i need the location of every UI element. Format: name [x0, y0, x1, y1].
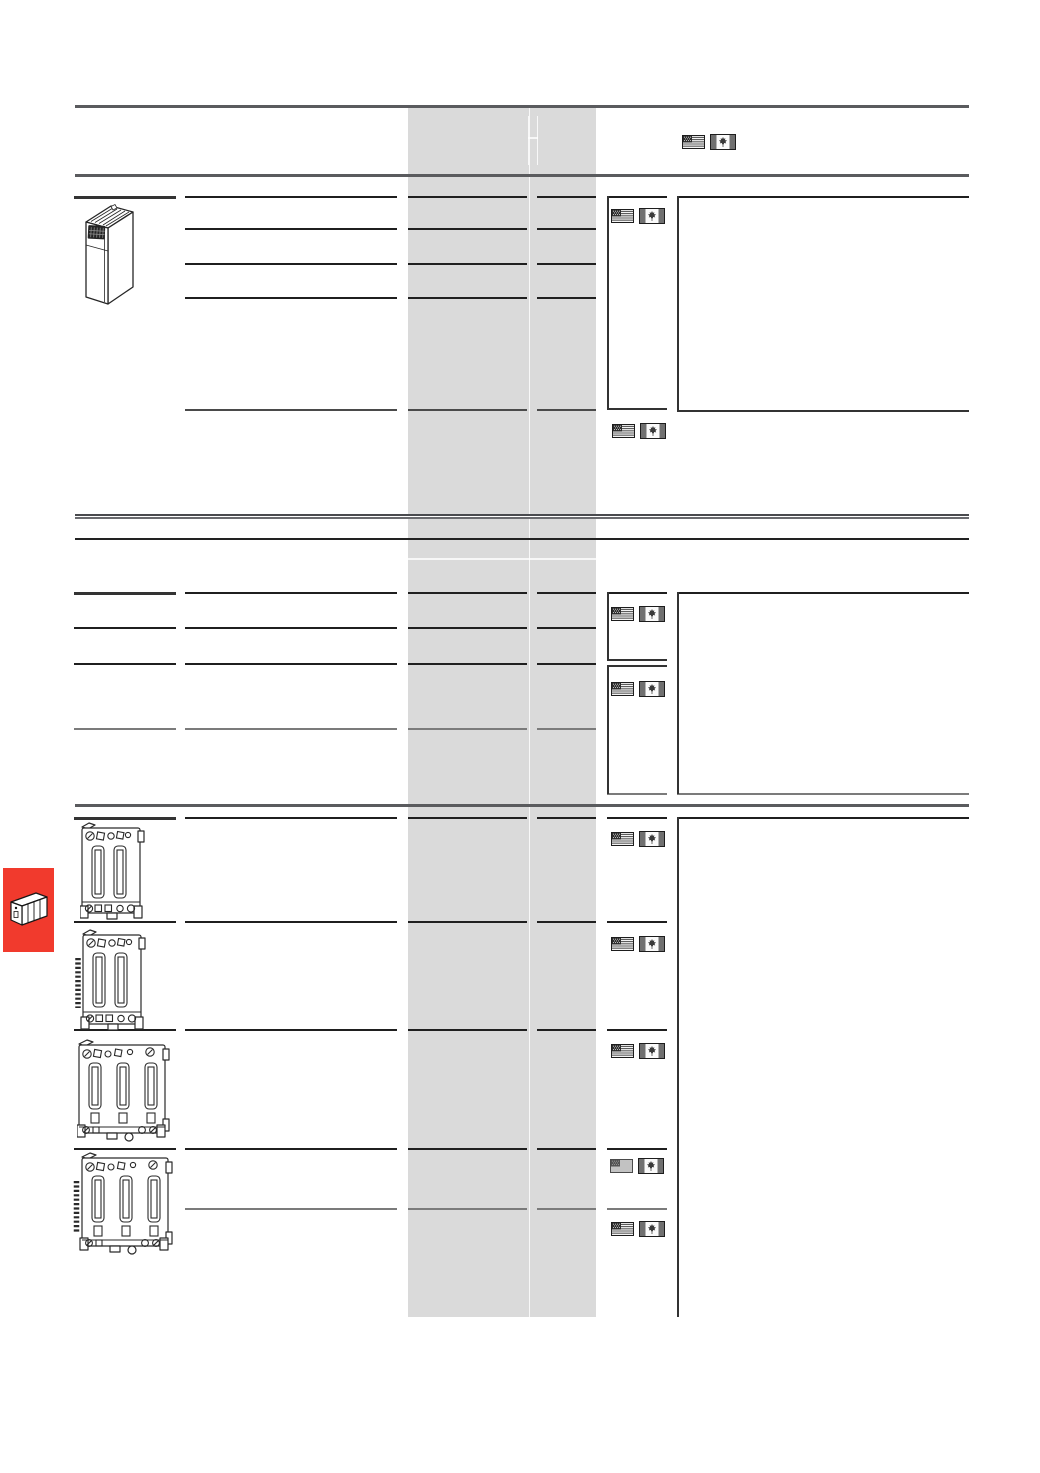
sub-row-line: [408, 409, 527, 411]
category-tab: [3, 868, 54, 952]
row-line: [185, 592, 397, 594]
flag-cell-top-border: [607, 1029, 667, 1031]
flag-cell-left-border: [607, 196, 609, 410]
availability-flags: [611, 936, 665, 952]
row-line: [185, 196, 397, 198]
availability-flags: [611, 208, 665, 224]
section2-header-rule: [75, 538, 969, 540]
row-line: [537, 263, 596, 265]
note-box-left-border: [677, 817, 679, 1317]
row-line: [74, 196, 176, 199]
us-flag-icon: [611, 607, 634, 621]
canada-flag-icon: [639, 681, 665, 697]
availability-flags: [611, 831, 665, 847]
price-header-divider-right: [537, 116, 539, 165]
row-line: [408, 297, 527, 299]
header-bottom-rule: [75, 174, 969, 177]
row-line: [537, 297, 596, 299]
row-line: [185, 627, 397, 629]
us-flag-icon: [682, 135, 705, 149]
row-line: [408, 592, 527, 594]
plc-rack-icon: [8, 890, 50, 930]
row-line: [537, 228, 596, 230]
row-line: [408, 663, 527, 665]
price-column-divider: [529, 107, 530, 1317]
row-line: [185, 921, 397, 923]
row-line: [537, 592, 596, 594]
sub-row-line: [185, 409, 397, 411]
canada-flag-icon: [639, 208, 665, 224]
canada-flag-icon: [710, 134, 736, 150]
flag-cell-bottom-border: [607, 408, 667, 410]
flag-cell-top-border: [607, 1148, 667, 1150]
section2-end-rule: [75, 804, 969, 807]
row-line: [185, 1029, 397, 1031]
sub-row-line: [185, 728, 397, 730]
availability-flags: [611, 606, 665, 622]
flag-cell-top-border: [607, 665, 667, 667]
row-line: [408, 1148, 527, 1150]
row-line: [537, 627, 596, 629]
availability-flags: [611, 1043, 665, 1059]
availability-flags: [610, 1158, 664, 1174]
sub-row-line: [537, 728, 596, 730]
flag-cell-left-border: [607, 592, 609, 659]
sub-row-line: [408, 1208, 527, 1210]
row-line: [537, 196, 596, 198]
us-flag-icon: [611, 937, 634, 951]
sub-row-line: [408, 728, 527, 730]
sub-row-line: [185, 1208, 397, 1210]
availability-flags: [612, 423, 666, 439]
row-line: [74, 592, 176, 595]
us-flag-icon: [611, 832, 634, 846]
canada-flag-icon: [639, 1043, 665, 1059]
us-flag-icon: [612, 424, 635, 438]
price-band-subrow-line: [408, 558, 596, 560]
canada-flag-icon: [639, 606, 665, 622]
row-line: [185, 1148, 397, 1150]
row-line: [408, 1029, 527, 1031]
terminal-block-3-connector-illustration: [77, 1037, 173, 1145]
canada-flag-icon: [640, 423, 666, 439]
header-availability-flags: [682, 134, 736, 150]
plc-module-illustration: [80, 201, 138, 306]
canada-flag-icon: [639, 831, 665, 847]
row-line: [185, 263, 397, 265]
row-line: [185, 663, 397, 665]
row-line: [537, 1029, 596, 1031]
row-line: [185, 228, 397, 230]
us-flag-faded-icon: [610, 1159, 633, 1173]
row-line: [74, 663, 176, 665]
row-line: [74, 921, 176, 923]
note-box-bottom-border: [677, 410, 969, 412]
flag-cell-bottom-border: [607, 793, 667, 795]
note-box-top-border: [677, 592, 969, 594]
row-line: [74, 627, 176, 629]
sub-row-line: [74, 728, 176, 730]
canada-flag-icon: [639, 936, 665, 952]
row-line: [74, 1148, 176, 1150]
page-top-rule: [75, 105, 969, 108]
row-line: [408, 627, 527, 629]
sub-row-line: [537, 409, 596, 411]
price-header-divider-cross: [528, 137, 539, 139]
row-line: [408, 196, 527, 198]
price-column-band: [408, 107, 596, 1317]
flag-cell-top-border: [607, 817, 667, 819]
terminal-block-2-connector-illustration: [80, 821, 146, 921]
availability-flags: [611, 1221, 665, 1237]
note-box-left-border: [677, 196, 679, 411]
availability-flags: [611, 681, 665, 697]
row-line: [185, 297, 397, 299]
flag-cell-bottom-border: [607, 659, 667, 661]
flag-cell-left-border: [607, 665, 609, 794]
row-line: [537, 1148, 596, 1150]
row-line: [408, 817, 527, 819]
row-line: [537, 921, 596, 923]
terminal-block-2-connector-pin-strip-illustration: [75, 928, 147, 1032]
us-flag-icon: [611, 209, 634, 223]
canada-flag-icon: [639, 1221, 665, 1237]
note-box-bottom-border: [677, 793, 969, 795]
row-line: [408, 263, 527, 265]
catalog-page: [0, 0, 1040, 1473]
row-line: [185, 817, 397, 819]
us-flag-icon: [611, 1222, 634, 1236]
note-box-top-border: [677, 196, 969, 198]
flag-cell-top-border: [607, 1208, 667, 1210]
terminal-block-3-connector-pin-strip-illustration: [73, 1151, 178, 1258]
canada-flag-icon: [638, 1158, 664, 1174]
note-box-left-border: [677, 592, 679, 794]
row-line: [537, 817, 596, 819]
sub-row-line: [537, 1208, 596, 1210]
row-line: [537, 663, 596, 665]
note-box-top-border: [677, 817, 969, 819]
us-flag-icon: [611, 1044, 634, 1058]
flag-cell-top-border: [607, 921, 667, 923]
price-header-divider-left: [528, 116, 530, 165]
us-flag-icon: [611, 682, 634, 696]
row-line: [408, 228, 527, 230]
flag-cell-top-border: [607, 592, 667, 594]
section1-end-rule: [75, 514, 969, 519]
flag-cell-top-border: [607, 196, 667, 198]
row-line: [408, 921, 527, 923]
row-line: [74, 817, 176, 820]
